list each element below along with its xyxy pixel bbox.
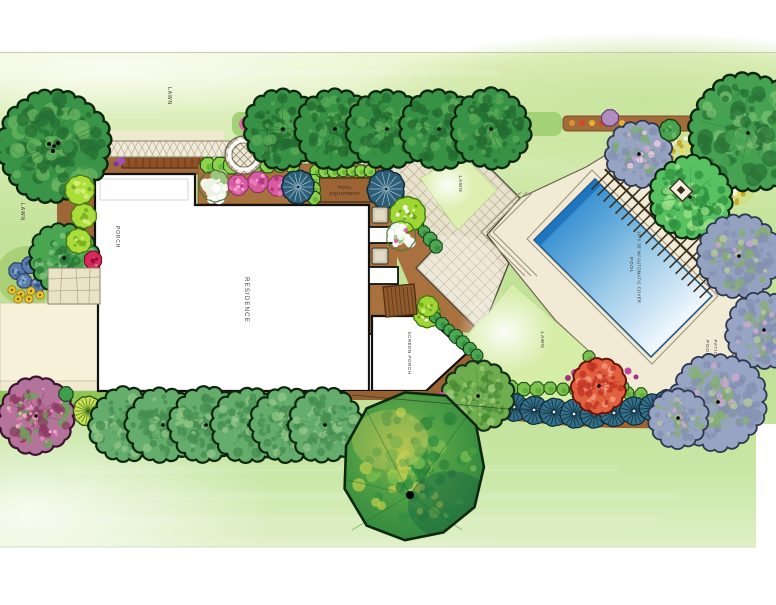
svg-text:POOL: POOL bbox=[338, 185, 352, 190]
svg-text:RESIDENCE: RESIDENCE bbox=[243, 277, 249, 323]
svg-text:EQUIPMENT: EQUIPMENT bbox=[330, 191, 361, 196]
svg-text:PATIO: PATIO bbox=[713, 339, 718, 356]
svg-text:PORCH: PORCH bbox=[114, 226, 120, 248]
svg-text:16' X 35' W/ AUTOMATIC COVER: 16' X 35' W/ AUTOMATIC COVER bbox=[637, 231, 642, 303]
svg-text:LAWN: LAWN bbox=[19, 203, 25, 221]
svg-text:LAWN: LAWN bbox=[166, 87, 172, 105]
svg-text:POOL: POOL bbox=[705, 340, 710, 356]
svg-text:LAWN: LAWN bbox=[539, 332, 545, 349]
svg-text:LAWN: LAWN bbox=[457, 176, 463, 193]
svg-text:SCREEN PORCH: SCREEN PORCH bbox=[407, 331, 412, 374]
svg-text:POOL: POOL bbox=[628, 257, 634, 273]
